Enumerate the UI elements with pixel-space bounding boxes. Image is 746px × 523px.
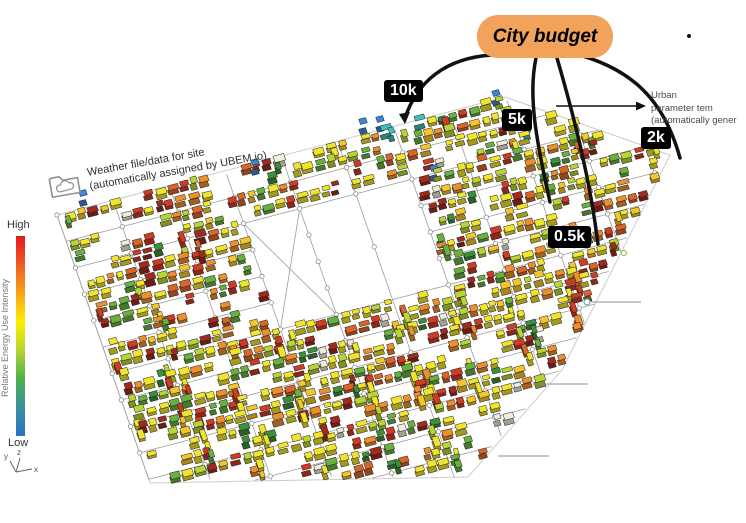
building	[505, 297, 513, 308]
building	[554, 125, 566, 137]
building	[572, 322, 581, 333]
building	[441, 184, 451, 195]
building	[122, 310, 134, 323]
axis-x-label: x	[34, 465, 38, 474]
building	[168, 284, 179, 298]
building	[619, 167, 629, 178]
building	[500, 280, 512, 295]
building	[442, 441, 452, 455]
building	[306, 320, 315, 333]
building	[551, 170, 559, 180]
building	[460, 339, 471, 349]
building	[132, 238, 143, 249]
building	[175, 194, 187, 208]
building	[226, 415, 234, 425]
building	[525, 191, 535, 203]
building	[207, 463, 217, 474]
building	[501, 383, 512, 395]
building	[513, 382, 521, 392]
building	[558, 296, 569, 309]
building	[352, 437, 361, 449]
building	[371, 315, 381, 328]
building	[337, 427, 345, 438]
building	[70, 239, 80, 250]
building	[204, 275, 216, 288]
building	[478, 448, 487, 460]
building	[179, 264, 190, 279]
building	[212, 329, 222, 342]
building	[218, 372, 230, 385]
building	[248, 190, 256, 203]
building	[516, 203, 528, 219]
building	[96, 276, 106, 288]
building	[442, 429, 454, 441]
building	[555, 269, 565, 279]
building	[464, 251, 476, 261]
building	[271, 400, 281, 414]
building	[168, 327, 177, 340]
building	[484, 315, 493, 329]
building	[460, 221, 470, 234]
building	[466, 232, 477, 246]
building	[466, 162, 474, 173]
building	[230, 310, 240, 323]
building	[257, 187, 266, 200]
building	[506, 323, 517, 336]
building	[193, 449, 202, 464]
building	[222, 317, 231, 327]
building	[327, 316, 339, 327]
building	[164, 254, 175, 268]
building	[331, 180, 339, 195]
building	[490, 402, 501, 413]
building	[199, 429, 208, 443]
building	[199, 175, 210, 188]
building	[287, 340, 296, 352]
building	[326, 444, 338, 457]
urban-parameter-note: Urban parameter tem (automatically gener	[651, 90, 746, 128]
building	[423, 128, 434, 143]
building	[143, 247, 153, 260]
budget-tag-5k: 5k	[502, 109, 532, 131]
building	[90, 233, 99, 244]
building	[468, 191, 477, 204]
building	[268, 184, 279, 198]
building	[262, 360, 271, 372]
building	[505, 207, 514, 221]
building	[125, 281, 136, 294]
building	[127, 340, 138, 351]
building	[490, 155, 501, 168]
building	[364, 404, 377, 417]
building	[448, 198, 456, 208]
building	[289, 180, 298, 191]
building	[492, 287, 500, 298]
building	[394, 371, 402, 382]
building	[361, 133, 371, 144]
ubem-figure: y z x City budget 10k 5k 2k 0.5k Urban p…	[0, 0, 746, 523]
building	[457, 122, 469, 132]
building	[190, 176, 198, 191]
building	[503, 313, 515, 323]
legend-title: Relative Energy Use Intensity	[0, 250, 10, 426]
building	[313, 431, 324, 445]
building	[230, 240, 240, 253]
building	[400, 129, 408, 143]
building	[403, 394, 412, 408]
building	[397, 356, 406, 367]
building	[342, 471, 352, 480]
buildings-layer	[65, 90, 660, 484]
building	[109, 301, 117, 310]
building	[510, 178, 518, 192]
building	[303, 435, 312, 448]
building	[193, 276, 204, 290]
building	[429, 203, 438, 214]
building	[562, 151, 571, 164]
building	[210, 288, 218, 300]
building	[534, 374, 546, 389]
building	[503, 251, 511, 261]
building	[427, 459, 438, 473]
building	[291, 433, 302, 452]
axis-y-label: y	[4, 452, 8, 461]
building	[206, 259, 216, 272]
building	[598, 259, 607, 269]
building	[242, 435, 251, 449]
building	[457, 163, 466, 178]
building	[465, 362, 476, 376]
building	[250, 466, 259, 477]
building	[525, 158, 536, 173]
building	[547, 143, 558, 153]
building	[149, 391, 159, 402]
building	[237, 192, 246, 206]
building	[469, 304, 478, 317]
building	[342, 397, 352, 410]
building	[305, 336, 315, 347]
building	[206, 419, 215, 431]
building	[301, 463, 311, 477]
building	[297, 191, 309, 204]
building	[417, 421, 428, 432]
building	[526, 352, 534, 366]
building	[385, 153, 393, 166]
building	[597, 245, 608, 256]
building	[222, 325, 234, 339]
building	[437, 355, 447, 370]
building	[299, 351, 307, 363]
building	[455, 422, 467, 437]
building	[169, 414, 179, 426]
building	[137, 307, 149, 318]
building	[477, 247, 486, 258]
building	[570, 163, 579, 176]
building	[338, 353, 347, 368]
building	[378, 419, 387, 430]
building	[567, 177, 575, 190]
building	[569, 301, 577, 317]
building	[131, 294, 140, 306]
building	[418, 290, 429, 303]
building	[228, 255, 237, 267]
building	[462, 177, 469, 189]
building	[160, 213, 172, 227]
building	[262, 203, 275, 214]
building	[185, 293, 194, 305]
building	[418, 318, 427, 331]
building	[332, 401, 342, 411]
building	[327, 154, 336, 168]
building	[559, 137, 569, 151]
building	[380, 313, 389, 327]
building	[419, 304, 430, 316]
building	[265, 447, 274, 458]
building	[500, 193, 512, 208]
building	[547, 345, 557, 356]
building	[244, 452, 253, 464]
urban-note-line1: Urban	[651, 90, 746, 103]
building	[456, 397, 465, 409]
building	[384, 443, 395, 455]
building	[218, 273, 227, 283]
building	[322, 185, 331, 198]
building	[493, 413, 501, 426]
building	[544, 272, 553, 284]
building	[273, 372, 283, 383]
building	[616, 195, 627, 207]
building	[407, 149, 418, 161]
building	[158, 416, 167, 429]
building	[434, 128, 443, 139]
building	[367, 364, 376, 374]
budget-tag-10k: 10k	[384, 80, 423, 102]
building	[144, 232, 155, 245]
building	[208, 450, 215, 465]
building	[216, 244, 228, 255]
building	[444, 123, 456, 138]
building	[364, 461, 374, 476]
building	[178, 231, 187, 248]
small-marker-circle	[622, 251, 627, 256]
building	[453, 249, 464, 266]
building	[387, 413, 396, 425]
building	[294, 364, 305, 378]
building	[562, 196, 570, 205]
building	[259, 404, 271, 417]
building	[469, 106, 480, 117]
building	[345, 325, 358, 337]
building	[75, 249, 86, 262]
building	[399, 410, 409, 422]
building	[502, 366, 513, 380]
weather-folder-icon	[49, 174, 80, 198]
building	[310, 406, 322, 418]
building	[143, 189, 153, 201]
building	[254, 346, 264, 360]
building	[497, 300, 505, 312]
building	[487, 271, 495, 284]
building	[449, 386, 458, 397]
building	[333, 386, 343, 397]
building	[177, 313, 188, 324]
building	[571, 148, 579, 160]
building	[215, 216, 224, 226]
building	[315, 158, 326, 171]
building	[594, 188, 605, 198]
building	[535, 245, 547, 258]
building	[107, 273, 115, 284]
building	[119, 367, 129, 381]
building	[239, 339, 249, 350]
building	[240, 236, 252, 249]
building	[459, 307, 469, 320]
building	[466, 396, 476, 406]
building	[518, 177, 527, 191]
building	[415, 465, 425, 476]
building	[272, 412, 284, 427]
building	[478, 131, 487, 142]
building	[501, 340, 513, 353]
building	[490, 226, 502, 241]
building	[118, 341, 126, 351]
building	[88, 289, 99, 302]
building	[504, 224, 516, 236]
building	[354, 464, 365, 478]
building	[477, 233, 489, 243]
building	[208, 317, 219, 329]
building	[510, 255, 521, 264]
building	[313, 447, 325, 461]
building	[275, 198, 285, 209]
building	[328, 355, 337, 369]
building	[553, 198, 563, 210]
building	[208, 229, 219, 242]
building	[550, 157, 560, 167]
building	[240, 365, 249, 378]
building	[517, 310, 525, 321]
building	[146, 348, 155, 361]
building	[363, 348, 373, 361]
building	[617, 178, 629, 191]
building	[387, 169, 397, 179]
building	[261, 328, 271, 343]
building	[501, 181, 509, 194]
building	[385, 356, 396, 368]
building	[170, 471, 181, 484]
building	[444, 170, 454, 180]
building	[559, 165, 570, 180]
building	[479, 405, 488, 416]
building	[320, 377, 328, 387]
building	[216, 389, 228, 400]
building	[228, 196, 238, 208]
building	[535, 185, 544, 199]
building	[278, 442, 289, 455]
building	[190, 365, 203, 378]
building	[513, 365, 525, 380]
building	[159, 402, 169, 414]
building	[359, 118, 368, 135]
building	[488, 245, 499, 255]
building	[428, 316, 439, 329]
building	[649, 157, 658, 169]
building	[558, 182, 566, 194]
building	[554, 280, 563, 295]
building	[315, 319, 327, 331]
building	[589, 262, 598, 272]
building	[414, 129, 423, 144]
building	[181, 453, 193, 465]
axis-z-label: z	[17, 448, 21, 457]
building	[525, 335, 534, 347]
building	[491, 367, 501, 384]
building	[157, 271, 168, 285]
building	[376, 155, 385, 169]
building	[370, 446, 383, 460]
building	[205, 217, 213, 230]
building	[483, 116, 491, 126]
building	[449, 324, 459, 336]
building	[576, 177, 586, 189]
building	[271, 386, 283, 398]
building	[293, 162, 302, 178]
building	[547, 357, 556, 369]
building	[80, 238, 91, 249]
building	[374, 373, 383, 385]
building	[428, 331, 440, 343]
building	[480, 97, 492, 112]
building	[176, 341, 187, 352]
building	[363, 174, 375, 186]
building	[356, 420, 368, 434]
building	[362, 452, 370, 462]
building	[467, 262, 477, 275]
building	[319, 387, 331, 401]
building	[295, 320, 307, 336]
building	[590, 272, 598, 285]
building	[477, 275, 485, 288]
building	[204, 362, 213, 373]
building	[472, 177, 481, 188]
building	[319, 360, 327, 371]
building	[230, 453, 241, 467]
building	[438, 198, 447, 210]
building	[545, 110, 557, 125]
building	[620, 151, 632, 164]
building	[194, 392, 206, 406]
building	[310, 188, 321, 202]
city-map-canvas: y z x	[0, 0, 746, 523]
building	[221, 228, 229, 238]
legend-high-label: High	[7, 219, 30, 231]
building	[192, 263, 203, 276]
building	[439, 216, 447, 226]
building	[490, 195, 499, 211]
building	[628, 193, 638, 203]
building	[338, 140, 346, 151]
building	[582, 202, 592, 216]
building	[609, 153, 620, 165]
building	[373, 345, 385, 357]
building	[376, 429, 385, 442]
building	[467, 132, 478, 146]
building	[100, 205, 109, 214]
building	[386, 427, 396, 441]
building	[517, 220, 525, 232]
building	[339, 453, 349, 467]
building	[108, 337, 118, 355]
